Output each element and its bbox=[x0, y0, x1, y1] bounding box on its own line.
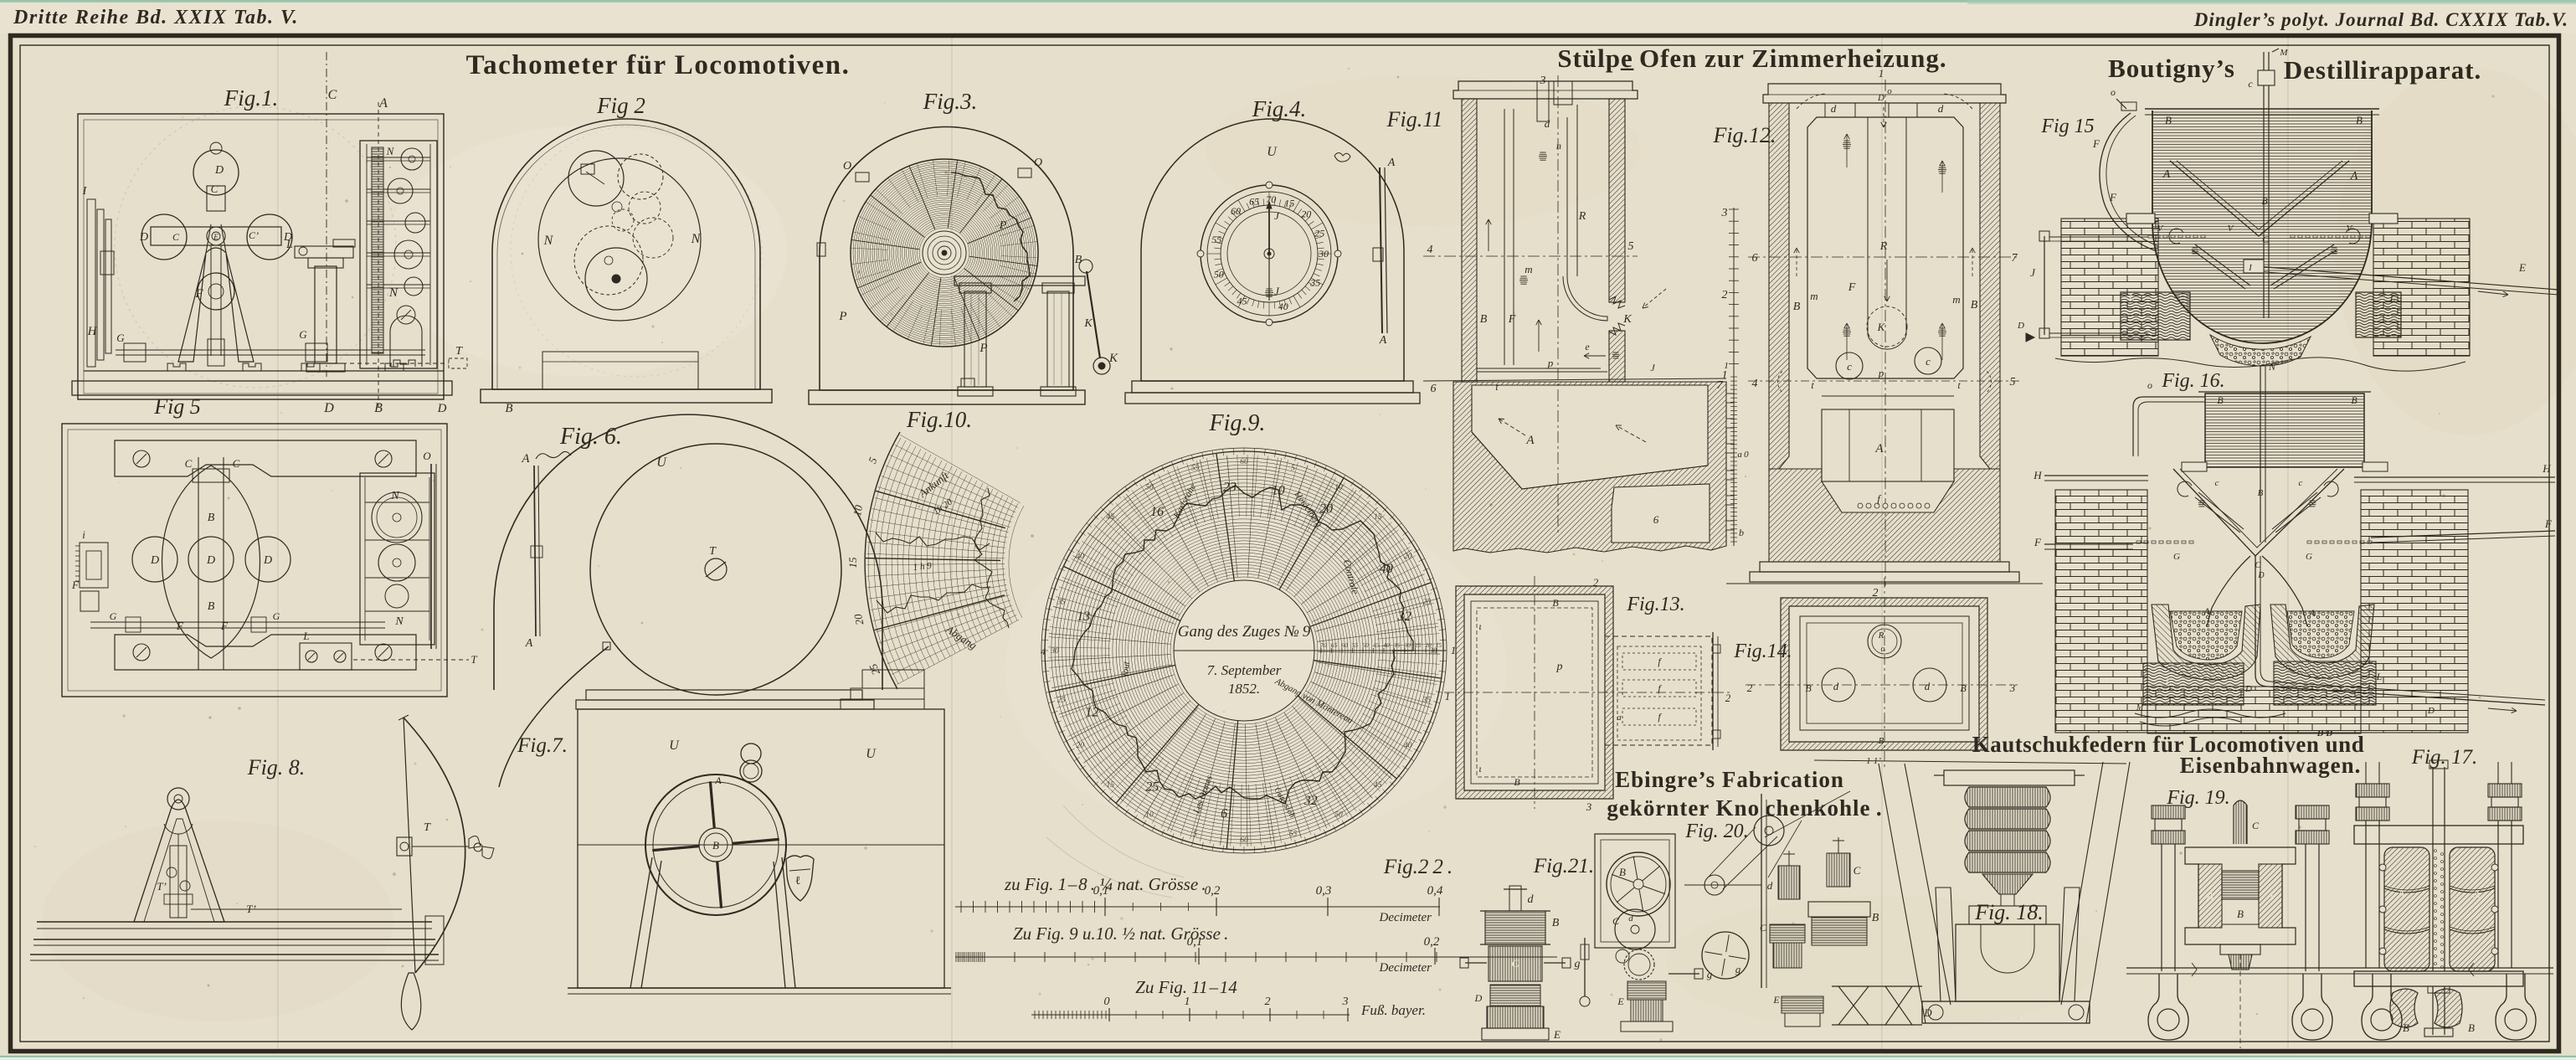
svg-text:g: g bbox=[1735, 963, 1741, 975]
svg-text:Fig. 8.: Fig. 8. bbox=[247, 755, 306, 780]
svg-text:45: 45 bbox=[1373, 641, 1380, 649]
svg-text:55: 55 bbox=[1191, 465, 1200, 473]
svg-text:C: C bbox=[1854, 864, 1861, 877]
svg-text:O: O bbox=[423, 450, 431, 462]
svg-text:7: 7 bbox=[2012, 252, 2018, 265]
svg-text:G: G bbox=[2306, 552, 2312, 562]
svg-text:K: K bbox=[1108, 352, 1118, 365]
svg-text:E: E bbox=[1553, 1028, 1561, 1041]
svg-text:1: 1 bbox=[1451, 644, 1457, 656]
svg-text:Fig. 20.: Fig. 20. bbox=[1684, 821, 1748, 842]
svg-text:0,3: 0,3 bbox=[1316, 884, 1332, 898]
svg-text:Zu Fig. 11 – 14: Zu Fig. 11 – 14 bbox=[1135, 977, 1237, 997]
svg-text:D: D bbox=[1877, 93, 1884, 103]
svg-text:0: 0 bbox=[1104, 996, 1110, 1008]
svg-text:c: c bbox=[1847, 360, 1852, 373]
svg-text:R: R bbox=[1878, 630, 1884, 641]
svg-text:D: D bbox=[1474, 992, 1483, 1004]
svg-text:G: G bbox=[116, 332, 125, 344]
svg-text:L: L bbox=[2128, 292, 2135, 304]
svg-text:B: B bbox=[2261, 195, 2268, 207]
svg-text:2: 2 bbox=[1265, 996, 1271, 1008]
svg-text:35: 35 bbox=[1422, 697, 1432, 705]
svg-text:L: L bbox=[2165, 676, 2172, 687]
svg-text:U: U bbox=[866, 747, 877, 761]
svg-text:P: P bbox=[838, 310, 846, 323]
svg-text:d: d bbox=[1831, 102, 1837, 115]
svg-text:1: 1 bbox=[1185, 996, 1190, 1008]
svg-text:Fig.10.: Fig.10. bbox=[906, 407, 972, 432]
svg-text:B: B bbox=[1971, 299, 1978, 311]
svg-text:A: A bbox=[1874, 442, 1884, 455]
svg-text:45: 45 bbox=[1106, 513, 1114, 522]
svg-text:55: 55 bbox=[1289, 830, 1298, 838]
svg-text:50: 50 bbox=[1145, 483, 1154, 491]
svg-text:B: B bbox=[1075, 254, 1082, 266]
svg-text:e: e bbox=[1585, 341, 1590, 352]
svg-text:25: 25 bbox=[1057, 697, 1066, 705]
svg-text:L: L bbox=[2389, 292, 2396, 304]
svg-text:N: N bbox=[2268, 361, 2276, 373]
svg-text:A: A bbox=[714, 774, 722, 786]
svg-text:ι: ι bbox=[1478, 620, 1481, 632]
svg-text:b: b bbox=[1739, 527, 1744, 538]
svg-text:a: a bbox=[1617, 713, 1622, 723]
svg-text:45: 45 bbox=[1374, 781, 1382, 790]
svg-text:p: p bbox=[1878, 367, 1884, 379]
svg-text:A: A bbox=[2397, 888, 2405, 901]
svg-text:B: B bbox=[208, 512, 215, 524]
svg-text:Fig.21.: Fig.21. bbox=[1533, 855, 1594, 877]
svg-text:Tachometer für Locomotiven.: Tachometer für Locomotiven. bbox=[466, 50, 851, 80]
svg-text:H: H bbox=[2033, 469, 2042, 481]
svg-text:60: 60 bbox=[1240, 458, 1248, 466]
svg-text:5: 5 bbox=[2010, 376, 2016, 388]
svg-text:70: 70 bbox=[1266, 193, 1276, 205]
svg-text:C: C bbox=[2252, 820, 2260, 831]
svg-text:Fig. 6.: Fig. 6. bbox=[559, 424, 622, 450]
svg-text:16: 16 bbox=[1150, 505, 1164, 519]
svg-text:Decimeter: Decimeter bbox=[1379, 961, 1432, 975]
svg-text:Gang des Zuges № 9: Gang des Zuges № 9 bbox=[1178, 623, 1311, 641]
svg-text:F: F bbox=[2544, 517, 2553, 530]
svg-text:B: B bbox=[1793, 301, 1801, 313]
svg-text:G: G bbox=[2173, 552, 2180, 562]
svg-text:B: B bbox=[2351, 394, 2357, 406]
svg-text:60: 60 bbox=[1231, 205, 1241, 217]
svg-text:H: H bbox=[87, 325, 98, 338]
svg-text:c: c bbox=[2248, 78, 2253, 90]
svg-text:F: F bbox=[2034, 536, 2042, 548]
svg-text:A: A bbox=[525, 637, 533, 650]
svg-text:d: d bbox=[1545, 117, 1550, 130]
svg-text:A: A bbox=[378, 96, 388, 111]
svg-text:A: A bbox=[1379, 334, 1387, 347]
svg-text:B: B bbox=[2468, 1021, 2475, 1034]
svg-text:R: R bbox=[1578, 210, 1586, 223]
svg-text:T: T bbox=[470, 653, 477, 666]
svg-text:C: C bbox=[172, 231, 180, 243]
svg-text:B: B bbox=[2356, 114, 2363, 126]
svg-text:B: B bbox=[1619, 866, 1626, 878]
svg-text:10: 10 bbox=[1334, 483, 1343, 491]
svg-text:6: 6 bbox=[1752, 252, 1758, 265]
svg-text:65: 65 bbox=[1331, 641, 1338, 649]
svg-text:25: 25 bbox=[1415, 641, 1422, 649]
svg-text:Fig 2: Fig 2 bbox=[596, 93, 645, 118]
svg-text:M: M bbox=[2279, 48, 2288, 58]
svg-text:d: d bbox=[1767, 879, 1773, 892]
svg-text:Fig 5: Fig 5 bbox=[153, 394, 201, 419]
svg-text:D: D bbox=[437, 402, 447, 415]
svg-text:B: B bbox=[712, 839, 719, 852]
svg-text:A: A bbox=[1525, 434, 1535, 447]
svg-text:25: 25 bbox=[1423, 599, 1432, 607]
svg-text:Fig.7.: Fig.7. bbox=[517, 734, 568, 757]
svg-text:C: C bbox=[1612, 915, 1620, 927]
svg-text:E: E bbox=[1617, 996, 1624, 1007]
svg-text:23: 23 bbox=[1223, 481, 1237, 495]
svg-text:D: D bbox=[2244, 684, 2252, 694]
svg-text:Fig 15: Fig 15 bbox=[2040, 116, 2094, 137]
svg-text:15: 15 bbox=[1284, 198, 1294, 209]
svg-text:15: 15 bbox=[1106, 781, 1114, 790]
svg-text:13: 13 bbox=[1077, 610, 1090, 624]
svg-text:0,2: 0,2 bbox=[1205, 884, 1221, 898]
svg-text:D: D bbox=[2017, 321, 2024, 331]
svg-text:Dingler’s polyt. Journal Bd. C: Dingler’s polyt. Journal Bd. CXXIX Tab.V… bbox=[2193, 9, 2568, 30]
svg-text:d: d bbox=[1938, 102, 1944, 115]
svg-text:M: M bbox=[2136, 703, 2144, 713]
svg-text:U: U bbox=[656, 455, 667, 470]
svg-text:Destillirapparat.: Destillirapparat. bbox=[2284, 55, 2482, 85]
svg-text:6: 6 bbox=[1221, 807, 1227, 821]
svg-text:1852.: 1852. bbox=[1228, 681, 1260, 697]
svg-text:K: K bbox=[1877, 321, 1886, 333]
svg-text:Eisenbahnwagen.: Eisenbahnwagen. bbox=[2180, 753, 2362, 778]
svg-text:N: N bbox=[543, 234, 554, 248]
svg-text:30: 30 bbox=[1050, 647, 1059, 656]
svg-text:A: A bbox=[1387, 157, 1396, 169]
svg-text:C: C bbox=[1512, 957, 1519, 970]
svg-text:p: p bbox=[1556, 661, 1563, 673]
svg-text:Fuß. bayer.: Fuß. bayer. bbox=[1360, 1002, 1426, 1018]
svg-text:6: 6 bbox=[1653, 513, 1659, 526]
svg-text:E: E bbox=[1772, 994, 1780, 1006]
svg-text:0,4: 0,4 bbox=[1427, 884, 1443, 898]
svg-text:c: c bbox=[1926, 355, 1931, 368]
svg-text:Fig.3.: Fig.3. bbox=[923, 89, 978, 114]
svg-text:F: F bbox=[1508, 313, 1516, 326]
svg-text:55: 55 bbox=[1211, 234, 1221, 245]
svg-text:C: C bbox=[233, 457, 240, 470]
svg-text:O: O bbox=[1034, 157, 1042, 169]
svg-text:G: G bbox=[299, 328, 307, 341]
svg-text:45: 45 bbox=[1237, 295, 1247, 306]
svg-text:3: 3 bbox=[1342, 996, 1349, 1008]
svg-text:Stülpe̲ Ofen zur Zimmerheizung: Stülpe̲ Ofen zur Zimmerheizung. bbox=[1557, 44, 1946, 73]
svg-text:35: 35 bbox=[1057, 599, 1066, 607]
svg-text:10: 10 bbox=[1272, 483, 1285, 497]
svg-text:Fig. 17.: Fig. 17. bbox=[2411, 746, 2477, 769]
svg-text:D: D bbox=[2427, 706, 2435, 716]
svg-text:Dritte Reihe Bd. XXIX Tab. V.: Dritte Reihe Bd. XXIX Tab. V. bbox=[13, 7, 299, 28]
svg-text:1 h 9: 1 h 9 bbox=[913, 561, 933, 573]
svg-text:32: 32 bbox=[1397, 610, 1411, 624]
svg-text:20: 20 bbox=[1301, 208, 1311, 220]
svg-text:5: 5 bbox=[1291, 465, 1295, 473]
svg-text:60: 60 bbox=[1240, 836, 1248, 845]
svg-text:H: H bbox=[2542, 462, 2551, 475]
svg-text:0,1: 0,1 bbox=[1093, 884, 1109, 898]
svg-text:C’: C’ bbox=[249, 229, 259, 241]
svg-text:F: F bbox=[71, 579, 80, 591]
svg-text:1: 1 bbox=[1879, 67, 1884, 80]
svg-text:m: m bbox=[1525, 263, 1532, 275]
svg-text:40: 40 bbox=[1278, 301, 1288, 312]
svg-text:A: A bbox=[2266, 889, 2274, 902]
svg-text:L: L bbox=[2376, 671, 2383, 682]
svg-text:7. September: 7. September bbox=[1207, 662, 1282, 678]
svg-text:4: 4 bbox=[1752, 378, 1758, 390]
svg-text:E: E bbox=[213, 233, 219, 241]
svg-text:A: A bbox=[2350, 170, 2358, 183]
svg-text:p: p bbox=[1547, 357, 1554, 369]
svg-text:4: 4 bbox=[1427, 244, 1433, 256]
svg-text:Fig. 16.: Fig. 16. bbox=[2161, 370, 2224, 392]
svg-text:20: 20 bbox=[1319, 502, 1333, 516]
svg-text:U: U bbox=[669, 738, 680, 753]
svg-text:C: C bbox=[211, 183, 219, 195]
svg-text:ι: ι bbox=[1478, 763, 1481, 774]
svg-text:5: 5 bbox=[1628, 240, 1634, 253]
svg-text:d: d bbox=[1833, 680, 1839, 692]
svg-text:A: A bbox=[521, 452, 530, 466]
svg-text:B: B bbox=[1552, 917, 1560, 929]
svg-text:20: 20 bbox=[1425, 641, 1432, 649]
svg-text:1: 1 bbox=[1445, 690, 1451, 702]
svg-text:D: D bbox=[150, 554, 159, 567]
svg-text:2: 2 bbox=[1593, 576, 1599, 589]
svg-text:A: A bbox=[2206, 889, 2214, 902]
svg-text:B: B bbox=[1480, 313, 1488, 326]
svg-text:B: B bbox=[505, 402, 512, 415]
svg-text:Fig.11: Fig.11 bbox=[1386, 107, 1443, 131]
svg-text:Fig.4.: Fig.4. bbox=[1252, 96, 1307, 121]
svg-text:o: o bbox=[2147, 379, 2152, 391]
svg-text:n: n bbox=[1556, 140, 1561, 152]
svg-text:D: D bbox=[206, 554, 215, 567]
svg-text:B: B bbox=[374, 401, 383, 415]
svg-text:C: C bbox=[328, 88, 337, 102]
svg-text:m: m bbox=[1952, 293, 1960, 306]
svg-text:10: 10 bbox=[1145, 811, 1154, 820]
svg-text:40: 40 bbox=[1404, 742, 1412, 750]
svg-text:12: 12 bbox=[1085, 705, 1098, 719]
svg-text:B: B bbox=[1552, 597, 1559, 609]
svg-text:F: F bbox=[1848, 281, 1856, 294]
svg-text:40: 40 bbox=[1077, 553, 1085, 561]
svg-text:D: D bbox=[263, 554, 272, 567]
svg-text:Tout: Tout bbox=[1120, 661, 1132, 678]
svg-text:E: E bbox=[2518, 261, 2526, 274]
svg-text:i: i bbox=[82, 528, 85, 541]
svg-text:G: G bbox=[273, 610, 280, 622]
svg-text:B: B bbox=[1805, 682, 1812, 694]
svg-text:Decimeter: Decimeter bbox=[1379, 911, 1432, 924]
svg-text:L: L bbox=[285, 239, 293, 251]
svg-text:D: D bbox=[139, 231, 148, 244]
svg-text:2: 2 bbox=[1747, 682, 1753, 694]
svg-text:N: N bbox=[386, 145, 395, 157]
svg-text:N: N bbox=[394, 615, 404, 628]
svg-text:4: 4 bbox=[1041, 646, 1046, 657]
svg-text:70: 70 bbox=[1320, 641, 1327, 649]
svg-text:1: 1 bbox=[1722, 369, 1728, 382]
svg-text:B: B bbox=[1879, 736, 1884, 746]
svg-text:T: T bbox=[455, 345, 463, 358]
svg-text:B: B bbox=[1514, 776, 1520, 788]
svg-text:F: F bbox=[194, 287, 203, 301]
svg-text:25: 25 bbox=[1145, 780, 1159, 795]
svg-text:Fig.12.: Fig.12. bbox=[1712, 123, 1776, 147]
svg-text:65: 65 bbox=[1249, 196, 1259, 208]
svg-text:d: d bbox=[1528, 893, 1535, 906]
svg-text:N: N bbox=[691, 232, 702, 246]
svg-text:D: D bbox=[2257, 571, 2265, 580]
svg-text:A: A bbox=[2162, 168, 2171, 181]
svg-text:R: R bbox=[1879, 240, 1888, 253]
svg-text:30: 30 bbox=[1403, 641, 1411, 649]
svg-text:32: 32 bbox=[1303, 794, 1318, 808]
svg-text:F: F bbox=[176, 620, 184, 632]
svg-text:B: B bbox=[2403, 1021, 2409, 1034]
svg-text:A: A bbox=[2472, 888, 2481, 901]
svg-text:C: C bbox=[185, 457, 193, 470]
svg-text:F: F bbox=[2109, 191, 2117, 203]
svg-text:15: 15 bbox=[1374, 513, 1382, 522]
svg-text:J: J bbox=[1650, 362, 1655, 373]
svg-text:a 0: a 0 bbox=[1737, 450, 1749, 460]
svg-text:Fig.2 2 .: Fig.2 2 . bbox=[1383, 856, 1453, 878]
svg-text:K: K bbox=[1083, 317, 1093, 330]
svg-text:20: 20 bbox=[1077, 742, 1085, 750]
svg-text:3: 3 bbox=[2009, 682, 2016, 694]
svg-text:50: 50 bbox=[1214, 268, 1224, 280]
svg-text:L: L bbox=[302, 630, 309, 642]
svg-text:50: 50 bbox=[1362, 641, 1369, 649]
svg-text:0,1: 0,1 bbox=[1187, 935, 1203, 949]
svg-text:3: 3 bbox=[1721, 207, 1728, 219]
svg-text:35: 35 bbox=[1393, 641, 1401, 649]
svg-text:m: m bbox=[1810, 290, 1818, 302]
svg-text:o: o bbox=[1887, 86, 1892, 96]
svg-text:20: 20 bbox=[1404, 553, 1412, 561]
svg-text:d: d bbox=[1925, 680, 1931, 692]
svg-text:F: F bbox=[220, 620, 229, 632]
svg-text:D: D bbox=[323, 401, 334, 415]
svg-text:30: 30 bbox=[1318, 248, 1329, 260]
svg-text:40: 40 bbox=[1383, 641, 1390, 649]
svg-text:c: c bbox=[2215, 478, 2219, 488]
svg-text:B: B bbox=[2237, 908, 2244, 920]
svg-text:F: F bbox=[2092, 137, 2100, 150]
svg-text:U: U bbox=[1267, 145, 1278, 159]
svg-text:B: B bbox=[1960, 682, 1967, 694]
svg-text:T: T bbox=[709, 545, 717, 558]
svg-text:Fig. 18.: Fig. 18. bbox=[1974, 900, 2044, 924]
svg-text:g: g bbox=[1575, 958, 1581, 970]
svg-text:55: 55 bbox=[1352, 641, 1359, 649]
svg-text:T’: T’ bbox=[157, 880, 167, 893]
svg-text:N: N bbox=[390, 490, 399, 502]
svg-text:Fig.9.: Fig.9. bbox=[1209, 410, 1266, 436]
svg-text:T: T bbox=[424, 821, 431, 834]
svg-text:15: 15 bbox=[1436, 641, 1442, 649]
svg-text:0,2: 0,2 bbox=[1424, 935, 1440, 949]
svg-text:25: 25 bbox=[1314, 228, 1324, 239]
svg-text:G: G bbox=[110, 610, 117, 622]
svg-text:o: o bbox=[2111, 86, 2116, 98]
svg-text:ℓ: ℓ bbox=[794, 875, 800, 888]
svg-text:B: B bbox=[2217, 394, 2224, 406]
svg-text:B: B bbox=[1872, 912, 1879, 924]
svg-text:B: B bbox=[208, 600, 215, 613]
svg-text:2: 2 bbox=[1722, 289, 1728, 301]
svg-text:d: d bbox=[1628, 913, 1633, 924]
svg-text:P: P bbox=[999, 219, 1007, 232]
svg-text:5: 5 bbox=[1193, 830, 1197, 838]
svg-text:3: 3 bbox=[1586, 800, 1592, 813]
svg-text:O: O bbox=[843, 160, 851, 172]
svg-text:P: P bbox=[979, 342, 987, 355]
svg-text:c: c bbox=[2299, 478, 2303, 488]
svg-text:50: 50 bbox=[1334, 811, 1343, 820]
svg-text:35: 35 bbox=[1309, 276, 1320, 288]
svg-text:Ebingre’s Fabrication: Ebingre’s Fabrication bbox=[1615, 767, 1844, 792]
svg-text:2: 2 bbox=[1725, 692, 1731, 704]
svg-text:C: C bbox=[1760, 922, 1767, 934]
svg-text:60: 60 bbox=[1341, 641, 1348, 649]
svg-text:40: 40 bbox=[1380, 562, 1393, 576]
svg-text:gekörnter Kno chenkohle .: gekörnter Kno chenkohle . bbox=[1607, 795, 1882, 821]
svg-text:15: 15 bbox=[846, 557, 859, 569]
svg-text:D: D bbox=[214, 164, 224, 177]
svg-text:B: B bbox=[2165, 114, 2172, 126]
svg-text:6: 6 bbox=[1431, 383, 1437, 395]
svg-text:Boutigny’s: Boutigny’s bbox=[2108, 54, 2235, 83]
svg-text:K: K bbox=[1622, 313, 1632, 326]
svg-text:Fig.13.: Fig.13. bbox=[1626, 594, 1684, 615]
